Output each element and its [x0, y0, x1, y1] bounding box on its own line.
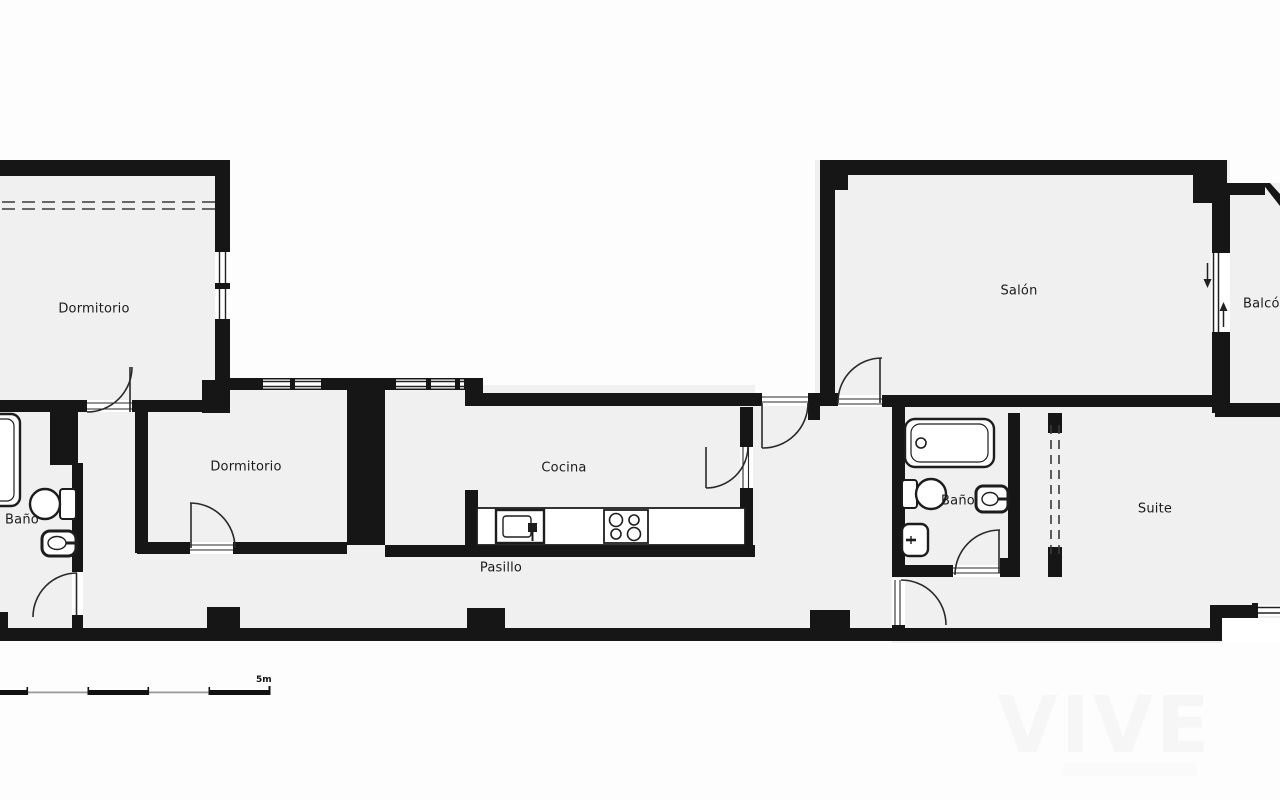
window-icon — [396, 379, 464, 390]
window-icon — [215, 246, 230, 325]
wall — [465, 490, 478, 547]
room-label-pasillo: Pasillo — [480, 561, 522, 576]
wall — [50, 412, 78, 465]
room-label-cocina: Cocina — [541, 461, 586, 476]
room-label-dormitorio2: Dormitorio — [210, 460, 281, 475]
wall — [1210, 605, 1252, 618]
room-label-bano1: Baño — [5, 513, 39, 528]
wall — [892, 565, 953, 577]
wall — [892, 625, 905, 641]
wall — [0, 612, 8, 628]
room-label-salon: Salón — [1000, 284, 1037, 299]
room-label-bano2: Baño — [941, 494, 975, 509]
wall — [1217, 183, 1265, 195]
wall — [0, 628, 1222, 641]
wall — [480, 393, 762, 406]
floor-plan: VIVE Dormitorio Dormitorio Baño Cocina P… — [0, 0, 1280, 800]
wall — [808, 393, 820, 420]
wall — [137, 542, 190, 554]
toilet-icon — [902, 479, 946, 509]
wall — [1212, 332, 1230, 413]
watermark-subline — [1063, 763, 1197, 776]
stove-icon — [604, 510, 648, 543]
scale-bar — [0, 686, 271, 695]
wall-pillar — [467, 608, 505, 628]
wall-pillar — [207, 607, 240, 628]
watermark: VIVE — [997, 681, 1212, 771]
wall — [1252, 603, 1258, 618]
room-label-balcon: Balcón — [1243, 297, 1280, 312]
wall-pillar — [810, 610, 850, 628]
wall — [233, 542, 347, 554]
wall — [215, 160, 230, 247]
wall — [0, 160, 230, 176]
room-fill-vestibule — [755, 395, 895, 640]
wall — [1048, 413, 1062, 433]
wall — [1048, 547, 1062, 577]
wall — [385, 545, 755, 557]
wall — [740, 407, 753, 447]
wall — [882, 395, 1230, 407]
exterior-fill — [1222, 618, 1280, 643]
wall — [1212, 195, 1230, 253]
bidet-icon — [902, 524, 928, 556]
wall — [820, 175, 835, 405]
kitchen-sink-icon — [496, 510, 544, 543]
bathtub-icon — [905, 419, 994, 467]
kitchen-counter — [477, 508, 745, 545]
window-icon — [1258, 605, 1280, 616]
wall — [135, 400, 148, 553]
wall — [0, 400, 87, 412]
wall — [820, 160, 1217, 175]
sink-icon — [42, 531, 76, 556]
room-label-dormitorio1: Dormitorio — [58, 302, 129, 317]
wall — [1008, 413, 1020, 563]
sink-icon — [976, 486, 1008, 512]
floor-plan-drawing — [0, 0, 1280, 800]
wall — [202, 380, 230, 413]
scale-bar-label: 5m — [256, 675, 272, 685]
room-label-suite: Suite — [1138, 502, 1172, 517]
bathtub-icon — [0, 414, 20, 506]
window-icon — [263, 379, 321, 390]
wall-column — [347, 378, 385, 545]
